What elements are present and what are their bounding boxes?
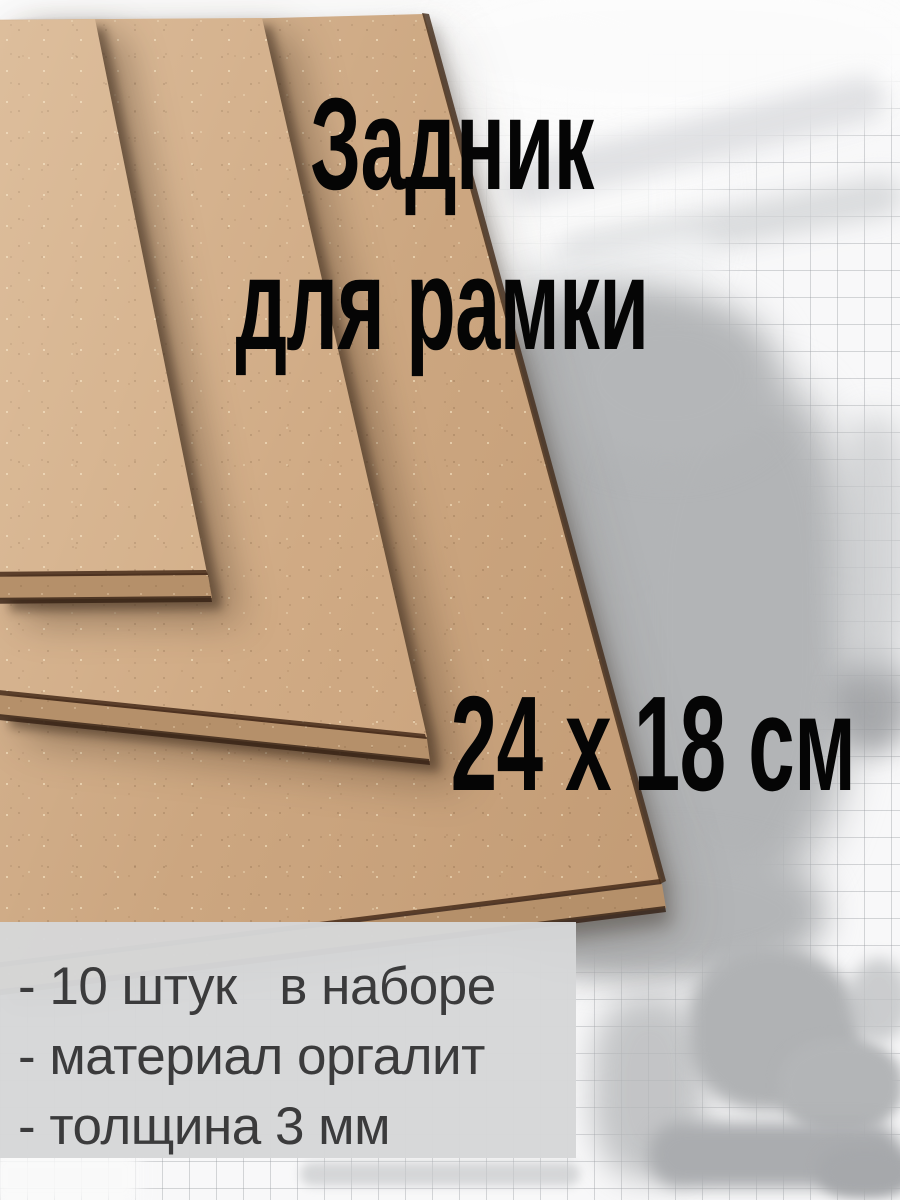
title-line-2: для рамки	[236, 238, 649, 369]
title-line-1: Задник	[310, 78, 594, 209]
specs-panel: - 10 штук в наборе - материал оргалит - …	[0, 922, 576, 1158]
product-image: Задник для рамки 24 x 18 см - 10 штук в …	[0, 0, 900, 1200]
size-label: 24 x 18 см	[451, 676, 856, 811]
spec-line-quantity: - 10 штук в наборе	[18, 952, 576, 1022]
spec-line-thickness: - толщина 3 мм	[18, 1092, 576, 1162]
spec-line-material: - материал оргалит	[18, 1022, 576, 1092]
